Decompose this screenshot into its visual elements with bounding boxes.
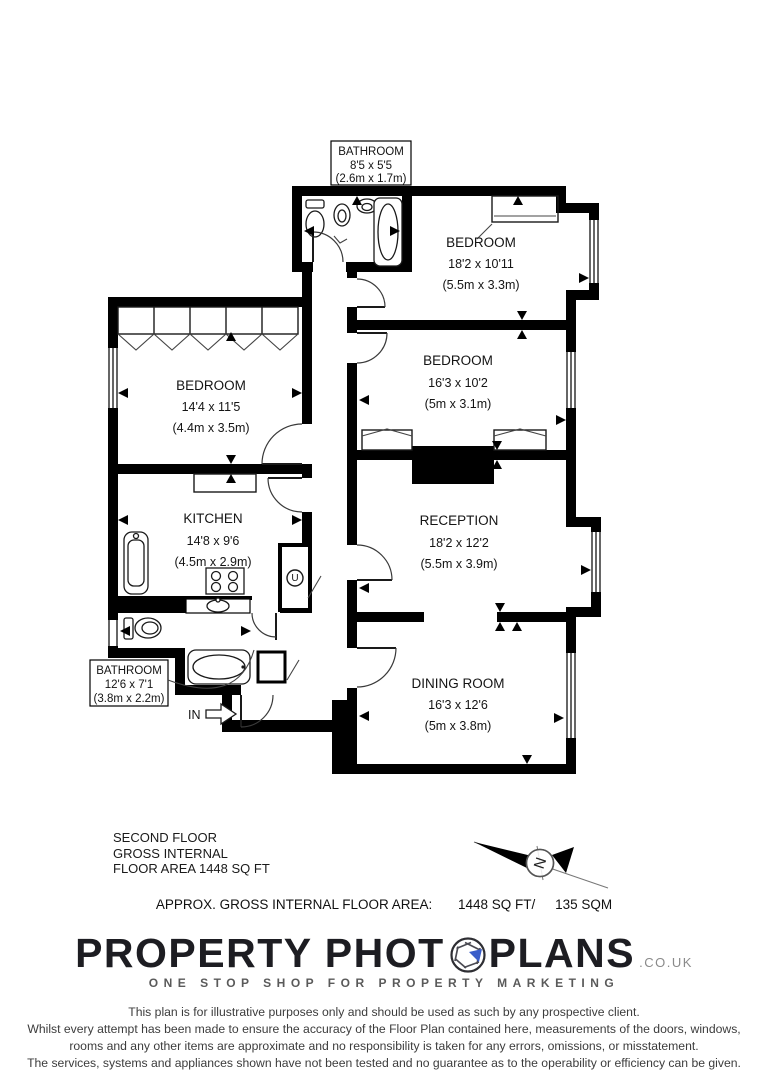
svg-text:RECEPTION: RECEPTION xyxy=(420,513,499,528)
floor-summary-line: FLOOR AREA 1448 SQ FT xyxy=(113,861,270,877)
window-bedroom-top-right xyxy=(588,220,600,283)
brand-tagline: ONE STOP SHOP FOR PROPERTY MARKETING xyxy=(0,976,768,990)
door-bathroom-lower xyxy=(252,613,276,640)
svg-text:12'6 x 7'1: 12'6 x 7'1 xyxy=(105,679,154,691)
door-bedroom-left xyxy=(262,424,302,464)
svg-text:16'3 x 12'6: 16'3 x 12'6 xyxy=(428,698,488,712)
aperture-blue-blade xyxy=(469,949,482,962)
label-reception: RECEPTION 18'2 x 12'2 (5.5m x 3.9m) xyxy=(420,513,499,571)
disclaimer-text: This plan is for illustrative purposes o… xyxy=(0,1004,768,1072)
svg-text:BATHROOM: BATHROOM xyxy=(96,665,162,677)
door-reception xyxy=(357,545,392,580)
door-dining-room xyxy=(357,648,396,687)
logo-text-left: PROPERTY PHOT xyxy=(75,930,445,977)
floor-summary-line: GROSS INTERNAL xyxy=(113,846,270,862)
door-kitchen xyxy=(268,478,302,512)
svg-text:(5.5m x 3.9m): (5.5m x 3.9m) xyxy=(420,557,497,571)
compass-icon: N xyxy=(468,834,618,898)
door-bedroom-top-right xyxy=(357,279,385,307)
svg-text:BEDROOM: BEDROOM xyxy=(176,378,246,393)
label-bedroom-top-right: BEDROOM 18'2 x 10'11 (5.5m x 3.3m) xyxy=(442,235,519,292)
door-bedroom-mid-right xyxy=(357,333,387,363)
gross-area-label: APPROX. GROSS INTERNAL FLOOR AREA: xyxy=(156,897,432,912)
room-labels: BATHROOM 8'5 x 5'5 (2.6m x 1.7m) BEDROOM… xyxy=(90,141,520,733)
label-kitchen: KITCHEN 14'8 x 9'6 (4.5m x 2.9m) xyxy=(174,511,251,569)
window-reception-bay xyxy=(590,532,602,592)
svg-text:(4.4m x 3.5m): (4.4m x 3.5m) xyxy=(172,421,249,435)
svg-text:18'2 x 12'2: 18'2 x 12'2 xyxy=(429,536,489,550)
logo-text-right: PLANS xyxy=(489,930,635,977)
label-dining-room: DINING ROOM 16'3 x 12'6 (5m x 3.8m) xyxy=(412,676,505,733)
kitchen-sink-unit xyxy=(124,532,148,594)
basin-bathroom-top xyxy=(334,204,350,226)
room-imperial: 8'5 x 5'5 xyxy=(350,160,392,172)
window-bathroom-lower xyxy=(107,620,119,646)
svg-text:KITCHEN: KITCHEN xyxy=(183,511,242,526)
svg-text:14'4 x 11'5: 14'4 x 11'5 xyxy=(182,400,241,414)
floor-plan-page: { "plan": { "rooms": [ {"id": "bathroom-… xyxy=(0,0,768,1087)
label-bathroom-top: BATHROOM 8'5 x 5'5 (2.6m x 1.7m) xyxy=(331,141,411,185)
bath-bathroom-lower xyxy=(188,650,250,684)
window-bedroom-mid-right xyxy=(565,352,577,408)
svg-text:14'8 x 9'6: 14'8 x 9'6 xyxy=(187,534,240,548)
floor-summary: SECOND FLOOR GROSS INTERNAL FLOOR AREA 1… xyxy=(113,830,270,877)
walls xyxy=(108,186,601,774)
svg-text:16'3 x 10'2: 16'3 x 10'2 xyxy=(428,376,488,390)
svg-text:(3.8m x 2.2m): (3.8m x 2.2m) xyxy=(94,693,165,705)
disclaimer-line: This plan is for illustrative purposes o… xyxy=(0,1004,768,1021)
gross-area-imperial: 1448 SQ FT/ xyxy=(458,897,535,912)
logo-domain-suffix: .CO.UK xyxy=(639,955,693,970)
aperture-icon xyxy=(448,935,488,975)
room-metric: (2.6m x 1.7m) xyxy=(336,173,407,185)
svg-text:18'2 x 10'11: 18'2 x 10'11 xyxy=(448,257,514,271)
svg-text:BEDROOM: BEDROOM xyxy=(446,235,516,250)
svg-text:(5m x 3.1m): (5m x 3.1m) xyxy=(425,397,492,411)
gross-area-line: APPROX. GROSS INTERNAL FLOOR AREA: 1448 … xyxy=(0,897,768,912)
gross-area-metric: 135 SQM xyxy=(555,897,612,912)
utility-cupboard xyxy=(280,545,321,610)
svg-text:BEDROOM: BEDROOM xyxy=(423,353,493,368)
hall-cupboard xyxy=(258,652,299,682)
svg-text:(5.5m x 3.3m): (5.5m x 3.3m) xyxy=(442,278,519,292)
label-bedroom-mid-right: BEDROOM 16'3 x 10'2 (5m x 3.1m) xyxy=(423,353,493,411)
entrance-label: IN xyxy=(188,708,201,722)
svg-text:(4.5m x 2.9m): (4.5m x 2.9m) xyxy=(174,555,251,569)
kitchen-round-sink xyxy=(186,598,250,613)
label-bedroom-left: BEDROOM 14'4 x 11'5 (4.4m x 3.5m) xyxy=(172,378,249,435)
svg-text:(5m x 3.8m): (5m x 3.8m) xyxy=(425,719,492,733)
floor-plan-drawing: BATHROOM 8'5 x 5'5 (2.6m x 1.7m) BEDROOM… xyxy=(0,0,768,800)
utility-label: U xyxy=(291,573,298,584)
window-dining-room xyxy=(565,653,577,738)
window-bedroom-left xyxy=(107,348,119,408)
floor-summary-line: SECOND FLOOR xyxy=(113,830,270,846)
disclaimer-line: Whilst every attempt has been made to en… xyxy=(0,1021,768,1038)
disclaimer-line: rooms and any other items are approximat… xyxy=(0,1038,768,1055)
kitchen-hob xyxy=(206,568,244,594)
kitchen-counter xyxy=(194,474,256,492)
brand-logo: PROPERTY PHOT PLANS .CO.UK xyxy=(0,930,768,977)
room-name: BATHROOM xyxy=(338,146,404,158)
wardrobe-bedroom-left xyxy=(118,307,298,350)
svg-text:DINING ROOM: DINING ROOM xyxy=(412,676,505,691)
disclaimer-line: The services, systems and appliances sho… xyxy=(0,1055,768,1072)
